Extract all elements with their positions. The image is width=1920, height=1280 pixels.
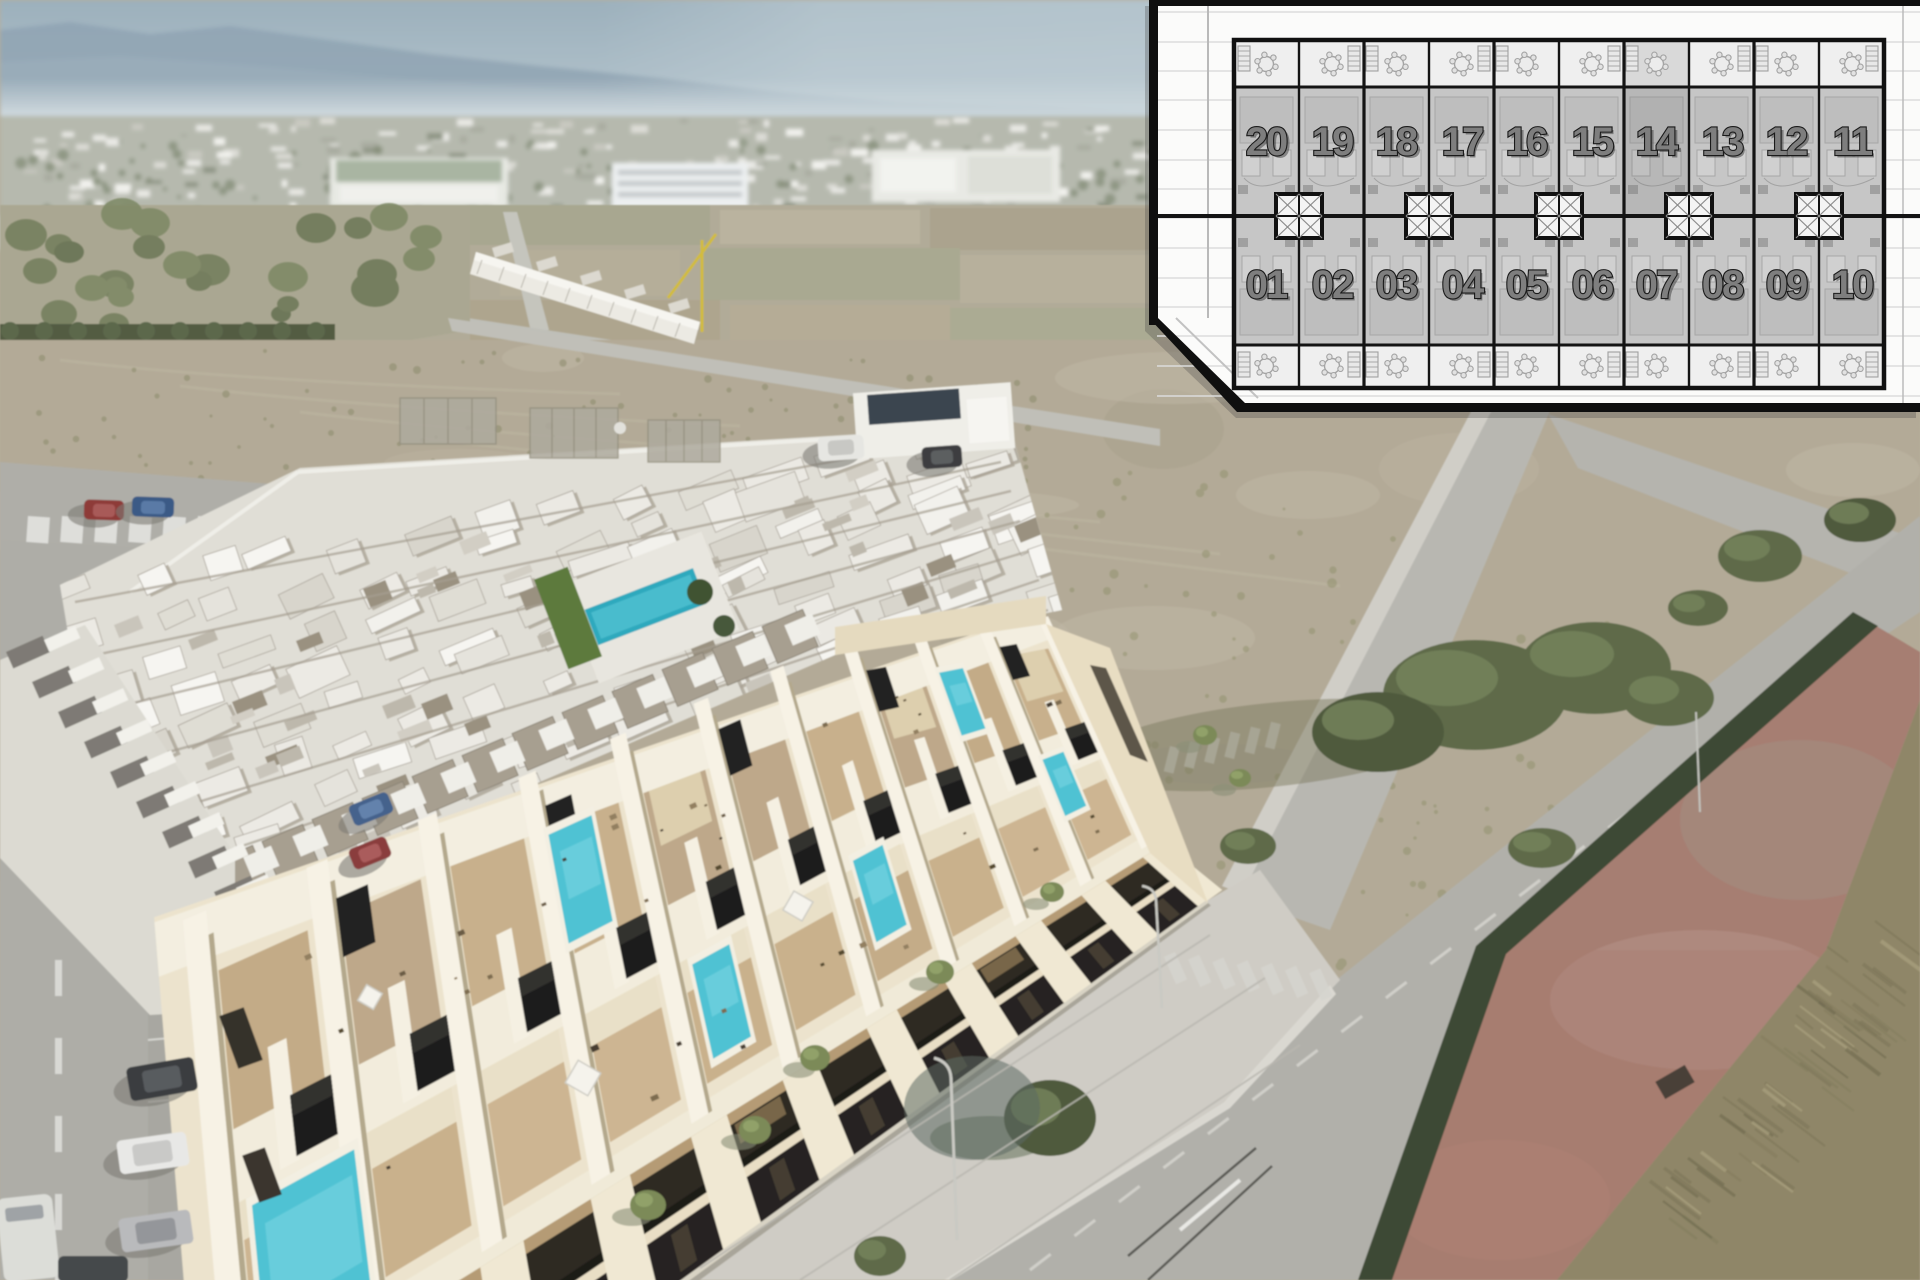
svg-text:08: 08 — [1702, 263, 1744, 307]
svg-text:04: 04 — [1442, 263, 1485, 307]
svg-text:02: 02 — [1312, 263, 1353, 307]
svg-text:01: 01 — [1246, 263, 1288, 307]
svg-text:07: 07 — [1636, 263, 1677, 307]
svg-text:16: 16 — [1506, 120, 1547, 164]
svg-text:17: 17 — [1442, 120, 1483, 164]
svg-text:13: 13 — [1702, 120, 1743, 164]
svg-text:09: 09 — [1766, 263, 1807, 307]
svg-text:06: 06 — [1572, 263, 1613, 307]
svg-text:12: 12 — [1766, 120, 1807, 164]
svg-text:03: 03 — [1376, 263, 1417, 307]
svg-text:15: 15 — [1572, 120, 1614, 164]
svg-text:18: 18 — [1376, 120, 1418, 164]
svg-text:20: 20 — [1246, 120, 1287, 164]
svg-text:19: 19 — [1312, 120, 1353, 164]
svg-text:14: 14 — [1636, 120, 1679, 164]
svg-text:11: 11 — [1833, 120, 1873, 164]
svg-text:05: 05 — [1506, 263, 1548, 307]
svg-text:10: 10 — [1832, 263, 1873, 307]
